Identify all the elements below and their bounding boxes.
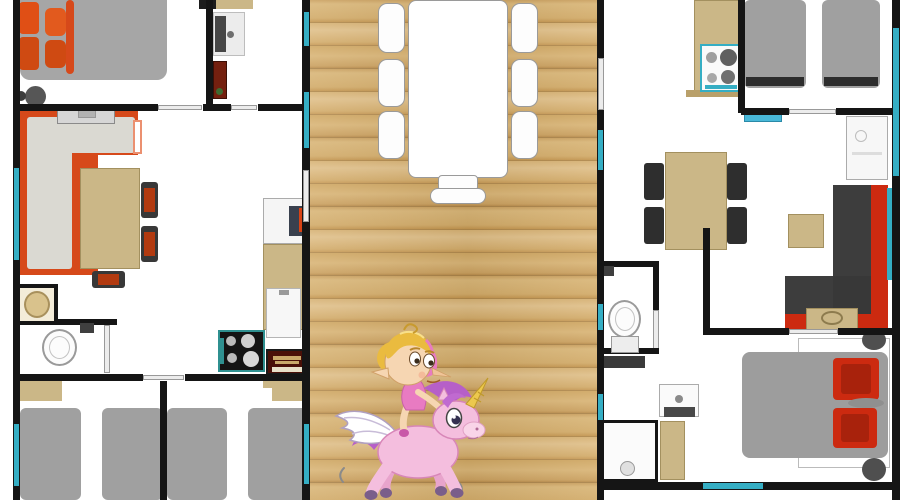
fairy-unicorn-illustration bbox=[330, 318, 502, 500]
side-table bbox=[788, 214, 824, 248]
patio-chair bbox=[511, 59, 538, 107]
unicorn-eye-highlight bbox=[452, 415, 456, 419]
single-bed bbox=[822, 0, 880, 88]
hob-burner bbox=[721, 70, 735, 84]
window bbox=[598, 130, 603, 170]
dining-chair bbox=[727, 207, 747, 244]
chair-pad bbox=[144, 232, 155, 256]
fairy-pupil bbox=[414, 358, 419, 363]
shelf-plant bbox=[216, 88, 223, 95]
basin-faucet bbox=[675, 395, 683, 403]
patio-chair bbox=[511, 111, 538, 159]
radiator bbox=[133, 120, 142, 154]
wall-hook bbox=[80, 323, 94, 333]
fairy-pupil bbox=[428, 360, 433, 365]
cabinet bbox=[660, 421, 685, 480]
tv-stand bbox=[78, 110, 96, 118]
sofa-cushions-left bbox=[27, 117, 72, 269]
unicorn-hoof bbox=[380, 488, 392, 498]
microwave-text-line bbox=[275, 361, 299, 364]
window bbox=[304, 424, 309, 484]
unicorn-muzzle bbox=[463, 422, 485, 438]
bed-pillow bbox=[19, 2, 39, 34]
dining-chair bbox=[644, 207, 664, 244]
bed-footboard bbox=[746, 77, 804, 86]
hob-burner bbox=[720, 49, 737, 66]
single-bed bbox=[744, 0, 806, 88]
door-leaf bbox=[653, 310, 659, 350]
single-bed bbox=[167, 408, 227, 500]
fairy-blush bbox=[419, 372, 426, 379]
patio-chair bbox=[378, 59, 405, 107]
dining-chair bbox=[727, 163, 747, 200]
door-leaf bbox=[598, 58, 604, 110]
unicorn-hoof bbox=[451, 488, 464, 498]
unicorn-hoof bbox=[435, 486, 447, 496]
hob-burner bbox=[227, 353, 237, 363]
wall bbox=[160, 381, 167, 500]
wall bbox=[13, 104, 158, 111]
pillow-inner bbox=[841, 364, 871, 394]
kitchen-sink bbox=[266, 288, 301, 338]
window bbox=[304, 12, 309, 46]
wall bbox=[703, 328, 789, 335]
wall bbox=[13, 374, 143, 381]
toilet-seat bbox=[615, 307, 635, 331]
shower-drain bbox=[620, 461, 635, 476]
fairy-mouth bbox=[427, 380, 440, 382]
window bbox=[887, 188, 892, 280]
fairy-nose bbox=[432, 368, 451, 377]
dining-chair bbox=[644, 163, 664, 200]
bed-runner bbox=[66, 0, 74, 74]
dining-table bbox=[665, 152, 727, 250]
fridge-detail bbox=[855, 130, 867, 142]
door-leaf bbox=[789, 329, 838, 334]
door-leaf bbox=[789, 109, 836, 114]
hob-burner bbox=[241, 334, 255, 348]
door-leaf bbox=[104, 325, 110, 373]
wall bbox=[703, 228, 710, 335]
toilet-seat bbox=[49, 336, 70, 359]
patio-chair bbox=[378, 111, 405, 159]
fairy-eye bbox=[424, 354, 435, 368]
window bbox=[304, 92, 309, 148]
washbasin bbox=[24, 291, 50, 318]
hall-counter bbox=[216, 0, 253, 9]
bed-footboard bbox=[824, 77, 878, 86]
window bbox=[598, 394, 603, 420]
door-leaf bbox=[158, 105, 202, 110]
bed-pillow bbox=[19, 37, 39, 70]
patio-chair-end-back bbox=[430, 188, 486, 204]
door-leaf bbox=[231, 105, 257, 110]
fridge bbox=[846, 116, 888, 180]
unicorn-nostril bbox=[476, 428, 479, 431]
wall bbox=[741, 108, 789, 115]
hob-burner bbox=[243, 351, 259, 367]
double-bed bbox=[20, 0, 167, 80]
wall bbox=[206, 0, 213, 110]
door-leaf bbox=[303, 170, 309, 222]
fairy-ear bbox=[372, 368, 389, 379]
microwave-tray bbox=[272, 367, 302, 372]
fairy-shoe bbox=[399, 429, 409, 437]
bath-mat bbox=[603, 356, 645, 368]
bed-pillow bbox=[45, 8, 66, 36]
door-leaf bbox=[143, 375, 184, 380]
window bbox=[598, 304, 603, 330]
bedside-stool bbox=[862, 458, 886, 481]
hob-knobs bbox=[220, 338, 224, 364]
single-bed bbox=[20, 408, 81, 500]
hob-burner bbox=[706, 52, 717, 63]
headboard-shelf bbox=[20, 380, 62, 401]
patio-table bbox=[408, 0, 508, 178]
washstand-knob bbox=[227, 31, 234, 38]
hob-controls bbox=[705, 85, 737, 89]
wall bbox=[838, 328, 892, 335]
dining-table bbox=[80, 168, 140, 269]
wall bbox=[836, 108, 900, 115]
microwave-text-line bbox=[273, 356, 301, 360]
chair-pad bbox=[144, 188, 155, 212]
patio-chair bbox=[378, 3, 405, 53]
window bbox=[14, 168, 19, 260]
toilet-tank bbox=[611, 336, 639, 353]
window bbox=[893, 28, 899, 176]
single-bed bbox=[102, 408, 163, 500]
wall bbox=[653, 261, 659, 311]
washbasin-base bbox=[664, 407, 695, 417]
hob-burner bbox=[707, 73, 717, 83]
unicorn-horn bbox=[466, 378, 488, 408]
single-bed bbox=[248, 408, 309, 500]
sofa-accent bbox=[870, 185, 888, 331]
ottoman-motif bbox=[821, 311, 843, 325]
bolster bbox=[848, 398, 884, 408]
window bbox=[14, 424, 19, 486]
window bbox=[703, 483, 763, 489]
wall bbox=[185, 374, 310, 381]
pillow-inner bbox=[841, 414, 869, 442]
patio-chair bbox=[511, 3, 538, 53]
sink-faucet bbox=[279, 290, 289, 295]
wall bbox=[258, 104, 310, 111]
hob-burner bbox=[226, 336, 236, 346]
floorplan-canvas bbox=[0, 0, 900, 500]
chair-pad bbox=[98, 274, 119, 285]
fairy-eye bbox=[410, 352, 421, 366]
bed-pillow bbox=[45, 40, 66, 68]
wall bbox=[738, 0, 745, 113]
unicorn-hoof bbox=[365, 490, 378, 500]
washstand-panel bbox=[215, 16, 226, 52]
fridge-detail-line bbox=[852, 152, 882, 155]
